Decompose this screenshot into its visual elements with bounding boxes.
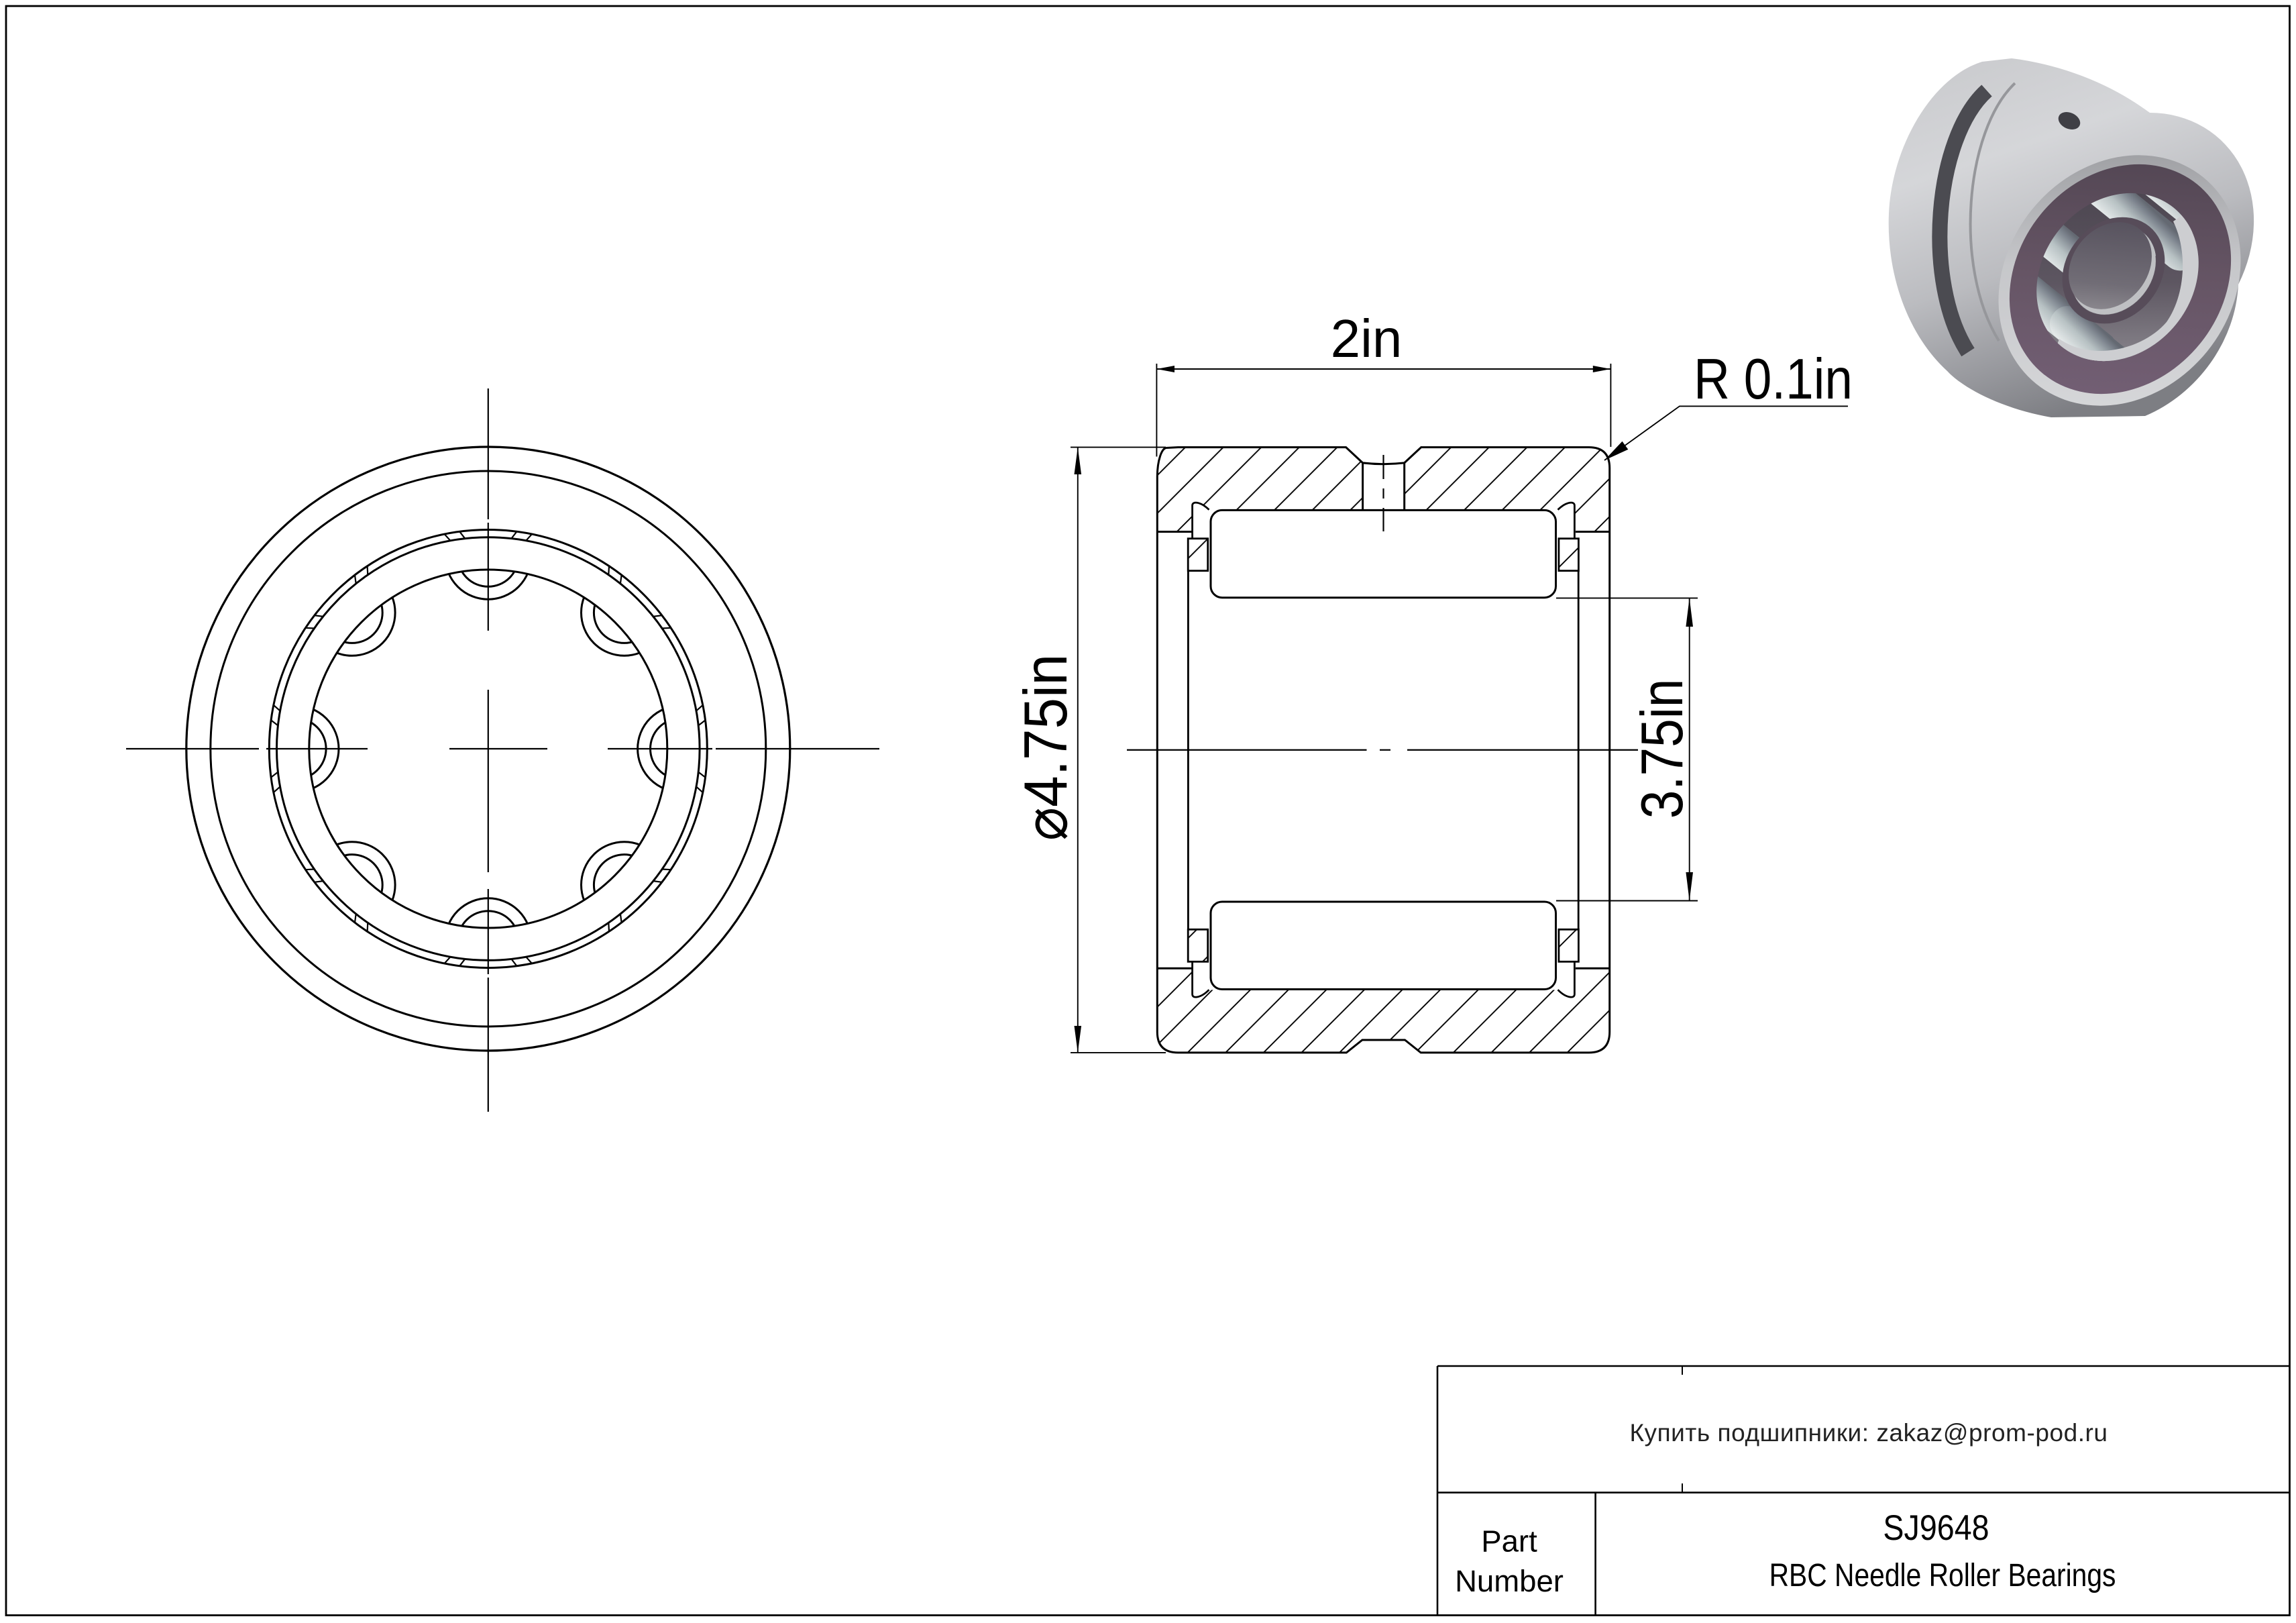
svg-text:SJ9648: SJ9648 <box>1883 1508 1989 1547</box>
svg-text:R 0.1in: R 0.1in <box>1694 348 1853 411</box>
svg-text:Купить подшипники: zakaz@prom-: Купить подшипники: zakaz@prom-pod.ru <box>1629 1419 2108 1447</box>
svg-text:⌀4.75in: ⌀4.75in <box>1012 654 1080 841</box>
svg-text:Part: Part <box>1481 1524 1537 1559</box>
svg-text:3.75in: 3.75in <box>1629 679 1695 819</box>
svg-text:RBC Needle Roller Bearings: RBC Needle Roller Bearings <box>1769 1558 2116 1593</box>
svg-text:2in: 2in <box>1331 309 1403 368</box>
svg-text:Number: Number <box>1455 1564 1564 1598</box>
